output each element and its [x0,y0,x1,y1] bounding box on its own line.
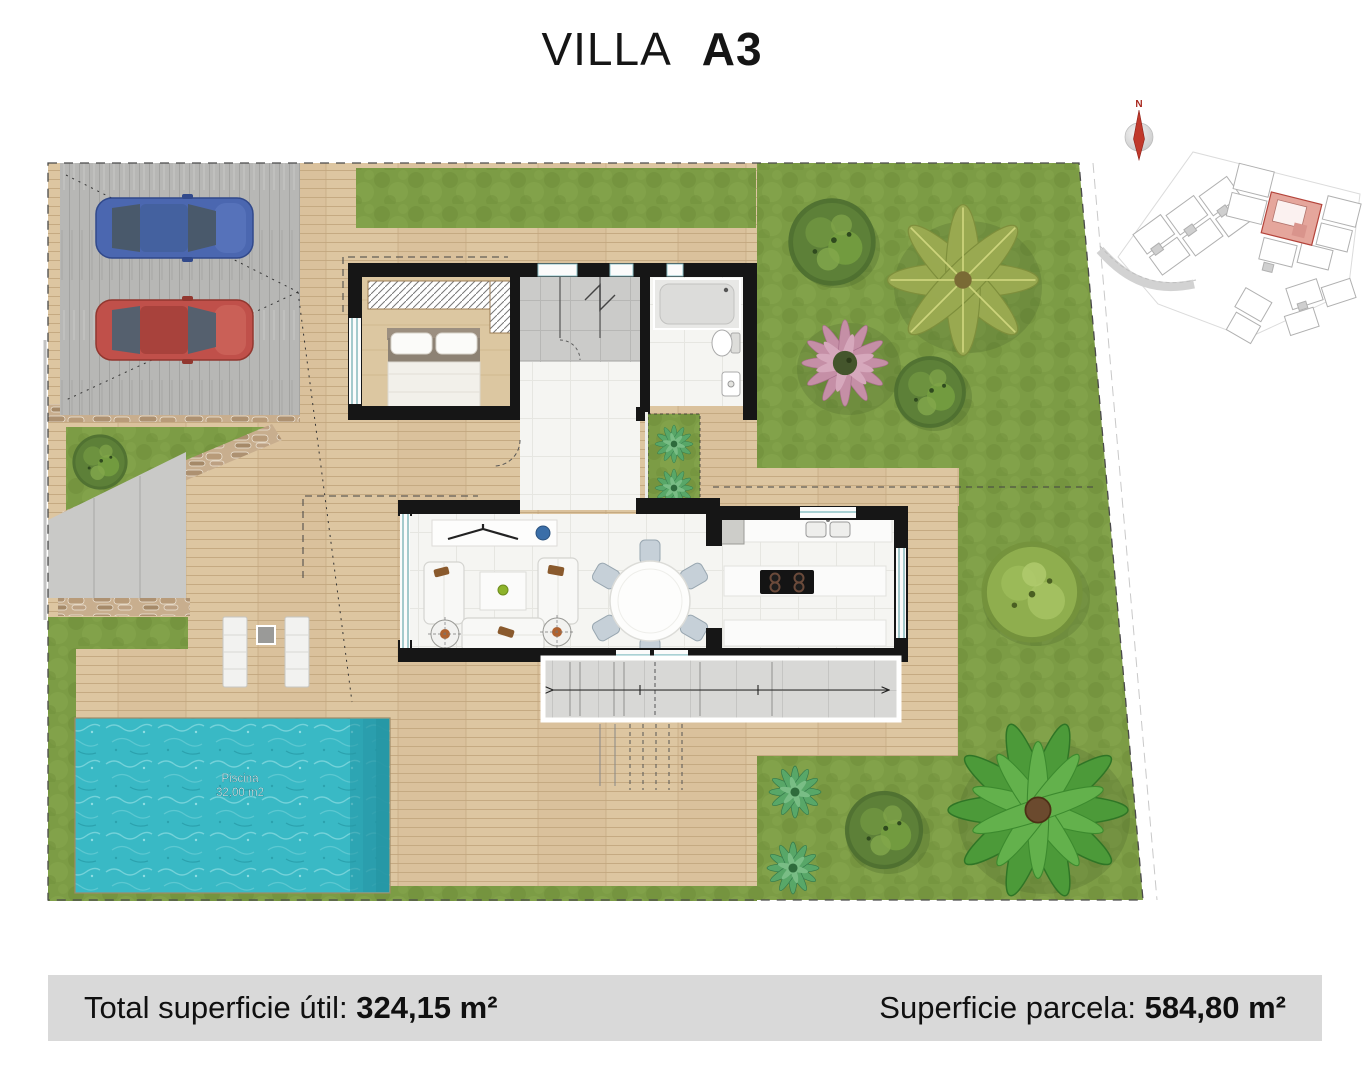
side-table [257,626,275,644]
usable-area-label: Total superficie útil: [84,990,356,1025]
plot-area-label: Superficie parcela: [879,990,1144,1025]
dressing-room-floor [520,277,640,362]
pool-steps [350,719,389,892]
light-bush [981,541,1082,642]
north-arrow: N [1125,99,1153,160]
hallway-floor [520,362,640,510]
site-plan-drawing: Piscina 32,00 m2 [0,0,1362,1080]
house-lower-block [398,498,908,662]
cooktop [760,570,814,594]
bush [72,434,127,489]
villa-unit-text: A3 [702,23,763,75]
floor-plan-page: VILLAA3 [0,0,1362,1080]
footer-bar: Total superficie útil: 324,15 m² Superfi… [48,975,1322,1041]
kitchen [714,516,892,646]
page-title: VILLAA3 [0,22,1304,76]
pool-label: Piscina [221,773,259,785]
bush [894,356,966,428]
car-red [96,296,253,364]
tv-sideboard [432,520,557,546]
coffee-table [480,572,526,610]
villa-title-text: VILLA [541,23,671,75]
north-label: N [1135,99,1142,110]
plot-area-total: Superficie parcela: 584,80 m² [879,990,1286,1026]
bathroom-sink [722,372,740,396]
bush [845,791,923,869]
car-blue [96,194,253,262]
pool-area-label: 32,00 m2 [216,787,264,799]
courtyard-planter [645,412,700,508]
swimming-pool: Piscina 32,00 m2 [75,718,390,893]
location-minimap [1100,152,1362,344]
bush [788,198,875,285]
toilet [712,330,740,356]
bed [387,328,480,408]
banana-plant [888,205,1039,356]
kitchen-counter [724,620,886,646]
plot-area-value: 584,80 m² [1145,990,1286,1025]
total-usable-area: Total superficie útil: 324,15 m² [84,990,498,1026]
usable-area-value: 324,15 m² [356,990,497,1025]
